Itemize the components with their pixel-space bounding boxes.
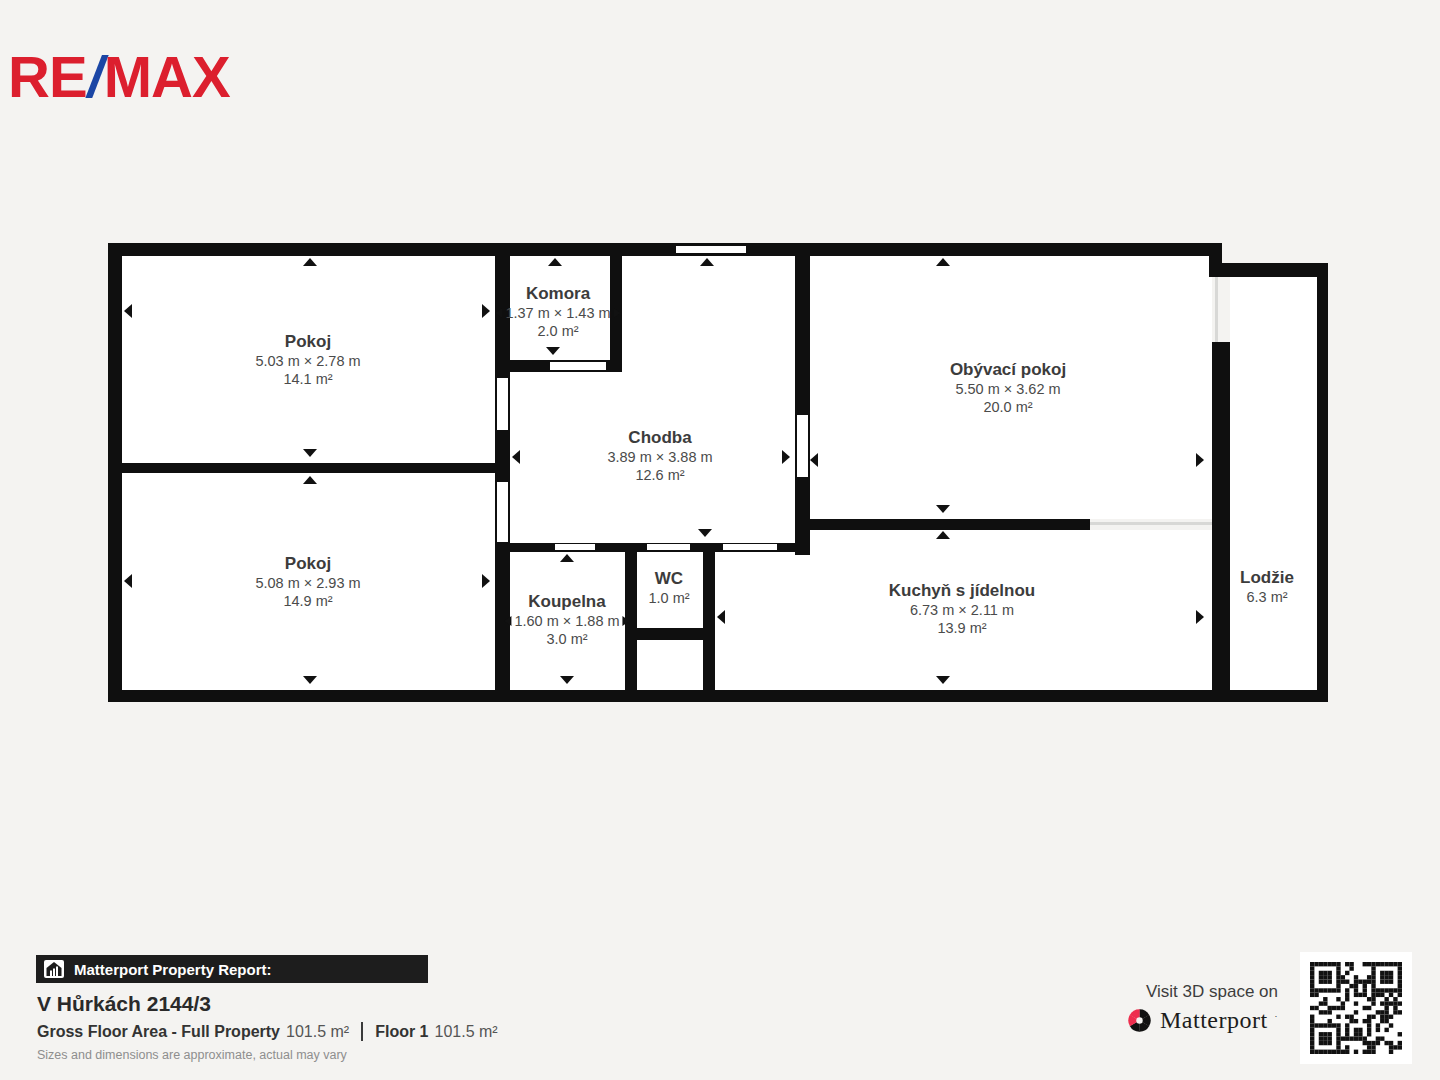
room-area: 13.9 m² xyxy=(889,619,1035,637)
door-pokoj-2-chodba xyxy=(497,482,508,542)
label-pokoj-2: Pokoj 5.08 m × 2.93 m 14.9 m² xyxy=(255,554,360,610)
label-chodba: Chodba 3.89 m × 3.88 m 12.6 m² xyxy=(607,428,712,484)
room-shaft xyxy=(637,640,703,690)
dimension-arrow-left xyxy=(124,574,132,588)
dimension-arrow-left xyxy=(495,308,502,318)
room-dimensions: 3.89 m × 3.88 m xyxy=(607,448,712,466)
room-name: Obývací pokoj xyxy=(950,360,1066,380)
label-lodzie: Lodžie 6.3 m² xyxy=(1240,568,1294,606)
wall-obyvaci-kuchyn xyxy=(795,519,1090,530)
gross-floor-area-value: 101.5 m² xyxy=(286,1023,349,1041)
door-obyvaci-chodba xyxy=(797,415,808,477)
visit-3d-block: Visit 3D space on Matterport˙ xyxy=(1126,982,1278,1034)
label-komora: Komora 1.37 m × 1.43 m 2.0 m² xyxy=(495,284,620,340)
dimension-arrow-left xyxy=(717,610,725,624)
room-name: Chodba xyxy=(607,428,712,448)
room-area: 3.0 m² xyxy=(504,630,629,648)
window-lodzie xyxy=(1215,277,1218,342)
qr-code-box xyxy=(1300,952,1412,1064)
matterport-house-icon xyxy=(44,960,64,978)
wall-chodba-right xyxy=(795,243,810,555)
room-dimensions: 5.50 m × 3.62 m xyxy=(950,380,1066,398)
dimension-arrow-right xyxy=(623,616,630,626)
dimension-arrow-right xyxy=(482,574,490,588)
matterport-trademark: ˙ xyxy=(1275,1015,1278,1026)
dimension-arrow-right xyxy=(1196,610,1204,624)
report-bar-label: Matterport Property Report: xyxy=(74,961,272,978)
open-boundary-kuchyn-obyvaci xyxy=(1090,522,1212,525)
room-area: 6.3 m² xyxy=(1240,588,1294,606)
matterport-pinwheel-icon xyxy=(1126,1007,1153,1034)
room-name: Pokoj xyxy=(255,554,360,574)
wall-pokoj-divider xyxy=(108,463,510,473)
dimension-arrow-right xyxy=(1196,453,1204,467)
room-name: Lodžie xyxy=(1240,568,1294,588)
wall-lodzie-top xyxy=(1212,263,1328,277)
room-area: 2.0 m² xyxy=(495,322,620,340)
dimension-arrow-left xyxy=(810,453,818,467)
room-dimensions: 1.37 m × 1.43 m xyxy=(495,304,620,322)
room-dimensions: 5.03 m × 2.78 m xyxy=(255,352,360,370)
room-lodzie xyxy=(1230,277,1317,690)
dimension-arrow-down xyxy=(303,449,317,457)
room-name: Komora xyxy=(495,284,620,304)
dimension-arrow-right xyxy=(782,450,790,464)
wall-wc-right xyxy=(703,543,715,690)
dimension-arrow-up xyxy=(936,258,950,266)
dimension-arrow-up xyxy=(303,476,317,484)
label-obyvaci-pokoj: Obývací pokoj 5.50 m × 3.62 m 20.0 m² xyxy=(950,360,1066,416)
room-area: 1.0 m² xyxy=(648,589,689,607)
door-pokoj-1-chodba xyxy=(497,378,508,430)
dimension-arrow-down xyxy=(546,347,560,355)
dimension-arrow-down xyxy=(698,529,712,537)
room-name: Pokoj xyxy=(255,332,360,352)
label-wc: WC 1.0 m² xyxy=(648,569,689,607)
label-pokoj-1: Pokoj 5.03 m × 2.78 m 14.1 m² xyxy=(255,332,360,388)
door-komora xyxy=(550,362,606,370)
door-koupelna xyxy=(555,544,595,550)
room-area: 20.0 m² xyxy=(950,398,1066,416)
dimension-arrow-up xyxy=(548,258,562,266)
dimension-arrow-down xyxy=(936,505,950,513)
dimension-arrow-left xyxy=(124,304,132,318)
room-kuchyn-left xyxy=(715,552,808,690)
vertical-divider xyxy=(361,1022,363,1041)
floor-area-value: 101.5 m² xyxy=(435,1023,498,1041)
wall-bottom xyxy=(108,690,1328,702)
door-wc xyxy=(647,544,690,550)
visit-3d-text: Visit 3D space on xyxy=(1126,982,1278,1002)
dimension-arrow-down xyxy=(303,676,317,684)
room-name: Kuchyň s jídelnou xyxy=(889,581,1035,601)
dimension-arrow-up xyxy=(700,258,714,266)
disclaimer-text: Sizes and dimensions are approximate, ac… xyxy=(37,1048,347,1062)
room-name: Koupelna xyxy=(504,592,629,612)
gross-floor-area-label: Gross Floor Area - Full Property xyxy=(37,1023,280,1041)
matterport-logo: Matterport˙ xyxy=(1126,1007,1278,1034)
matterport-wordmark: Matterport xyxy=(1160,1007,1268,1034)
room-chodba-upper xyxy=(622,256,795,372)
dimension-arrow-up xyxy=(303,258,317,266)
dimension-arrow-right xyxy=(482,304,490,318)
floor-plan: Pokoj 5.03 m × 2.78 m 14.1 m² Komora 1.3… xyxy=(0,0,1440,1080)
floor-label: Floor 1 xyxy=(375,1023,428,1041)
label-koupelna: Koupelna 1.60 m × 1.88 m 3.0 m² xyxy=(504,592,629,648)
wall-top xyxy=(108,243,1222,256)
wall-lodzie-right xyxy=(1317,263,1328,702)
qr-code xyxy=(1310,962,1402,1054)
window-chodba-top xyxy=(676,246,746,253)
area-summary: Gross Floor Area - Full Property 101.5 m… xyxy=(37,1022,498,1041)
dimension-arrow-right xyxy=(614,308,621,318)
label-kuchyn: Kuchyň s jídelnou 6.73 m × 2.11 m 13.9 m… xyxy=(889,581,1035,637)
room-area: 14.9 m² xyxy=(255,592,360,610)
room-dimensions: 1.60 m × 1.88 m xyxy=(504,612,629,630)
wall-lodzie-left xyxy=(1212,342,1230,690)
dimension-arrow-down xyxy=(936,676,950,684)
wall-wc-shaft-divider xyxy=(625,628,715,640)
room-dimensions: 5.08 m × 2.93 m xyxy=(255,574,360,592)
dimension-arrow-down xyxy=(560,676,574,684)
door-kuchyn xyxy=(723,544,777,550)
room-name: WC xyxy=(648,569,689,589)
room-area: 12.6 m² xyxy=(607,466,712,484)
room-dimensions: 6.73 m × 2.11 m xyxy=(889,601,1035,619)
room-area: 14.1 m² xyxy=(255,370,360,388)
dimension-arrow-up xyxy=(560,554,574,562)
report-bar: Matterport Property Report: xyxy=(36,955,428,983)
dimension-arrow-left xyxy=(504,616,511,626)
dimension-arrow-up xyxy=(936,531,950,539)
property-address: V Hůrkách 2144/3 xyxy=(37,992,211,1016)
dimension-arrow-left xyxy=(512,450,520,464)
